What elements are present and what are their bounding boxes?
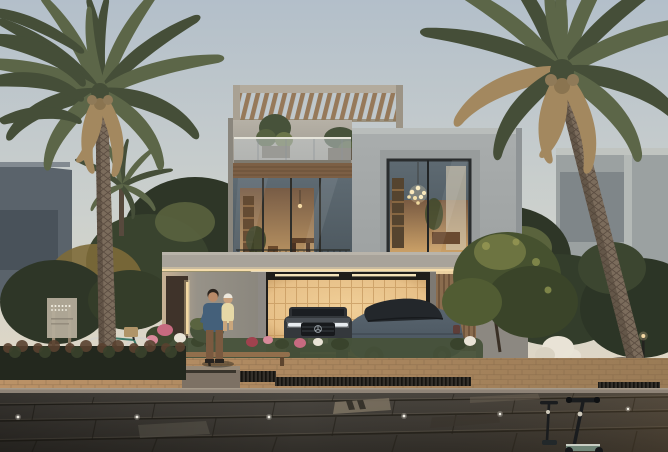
front-hedge [0, 340, 186, 380]
balcony-balustrade [234, 137, 351, 163]
cube-window [388, 160, 470, 254]
villa-rendering [0, 0, 668, 452]
left-block-edge [228, 118, 233, 270]
timber-band [233, 163, 352, 178]
suv-grille [301, 323, 335, 336]
